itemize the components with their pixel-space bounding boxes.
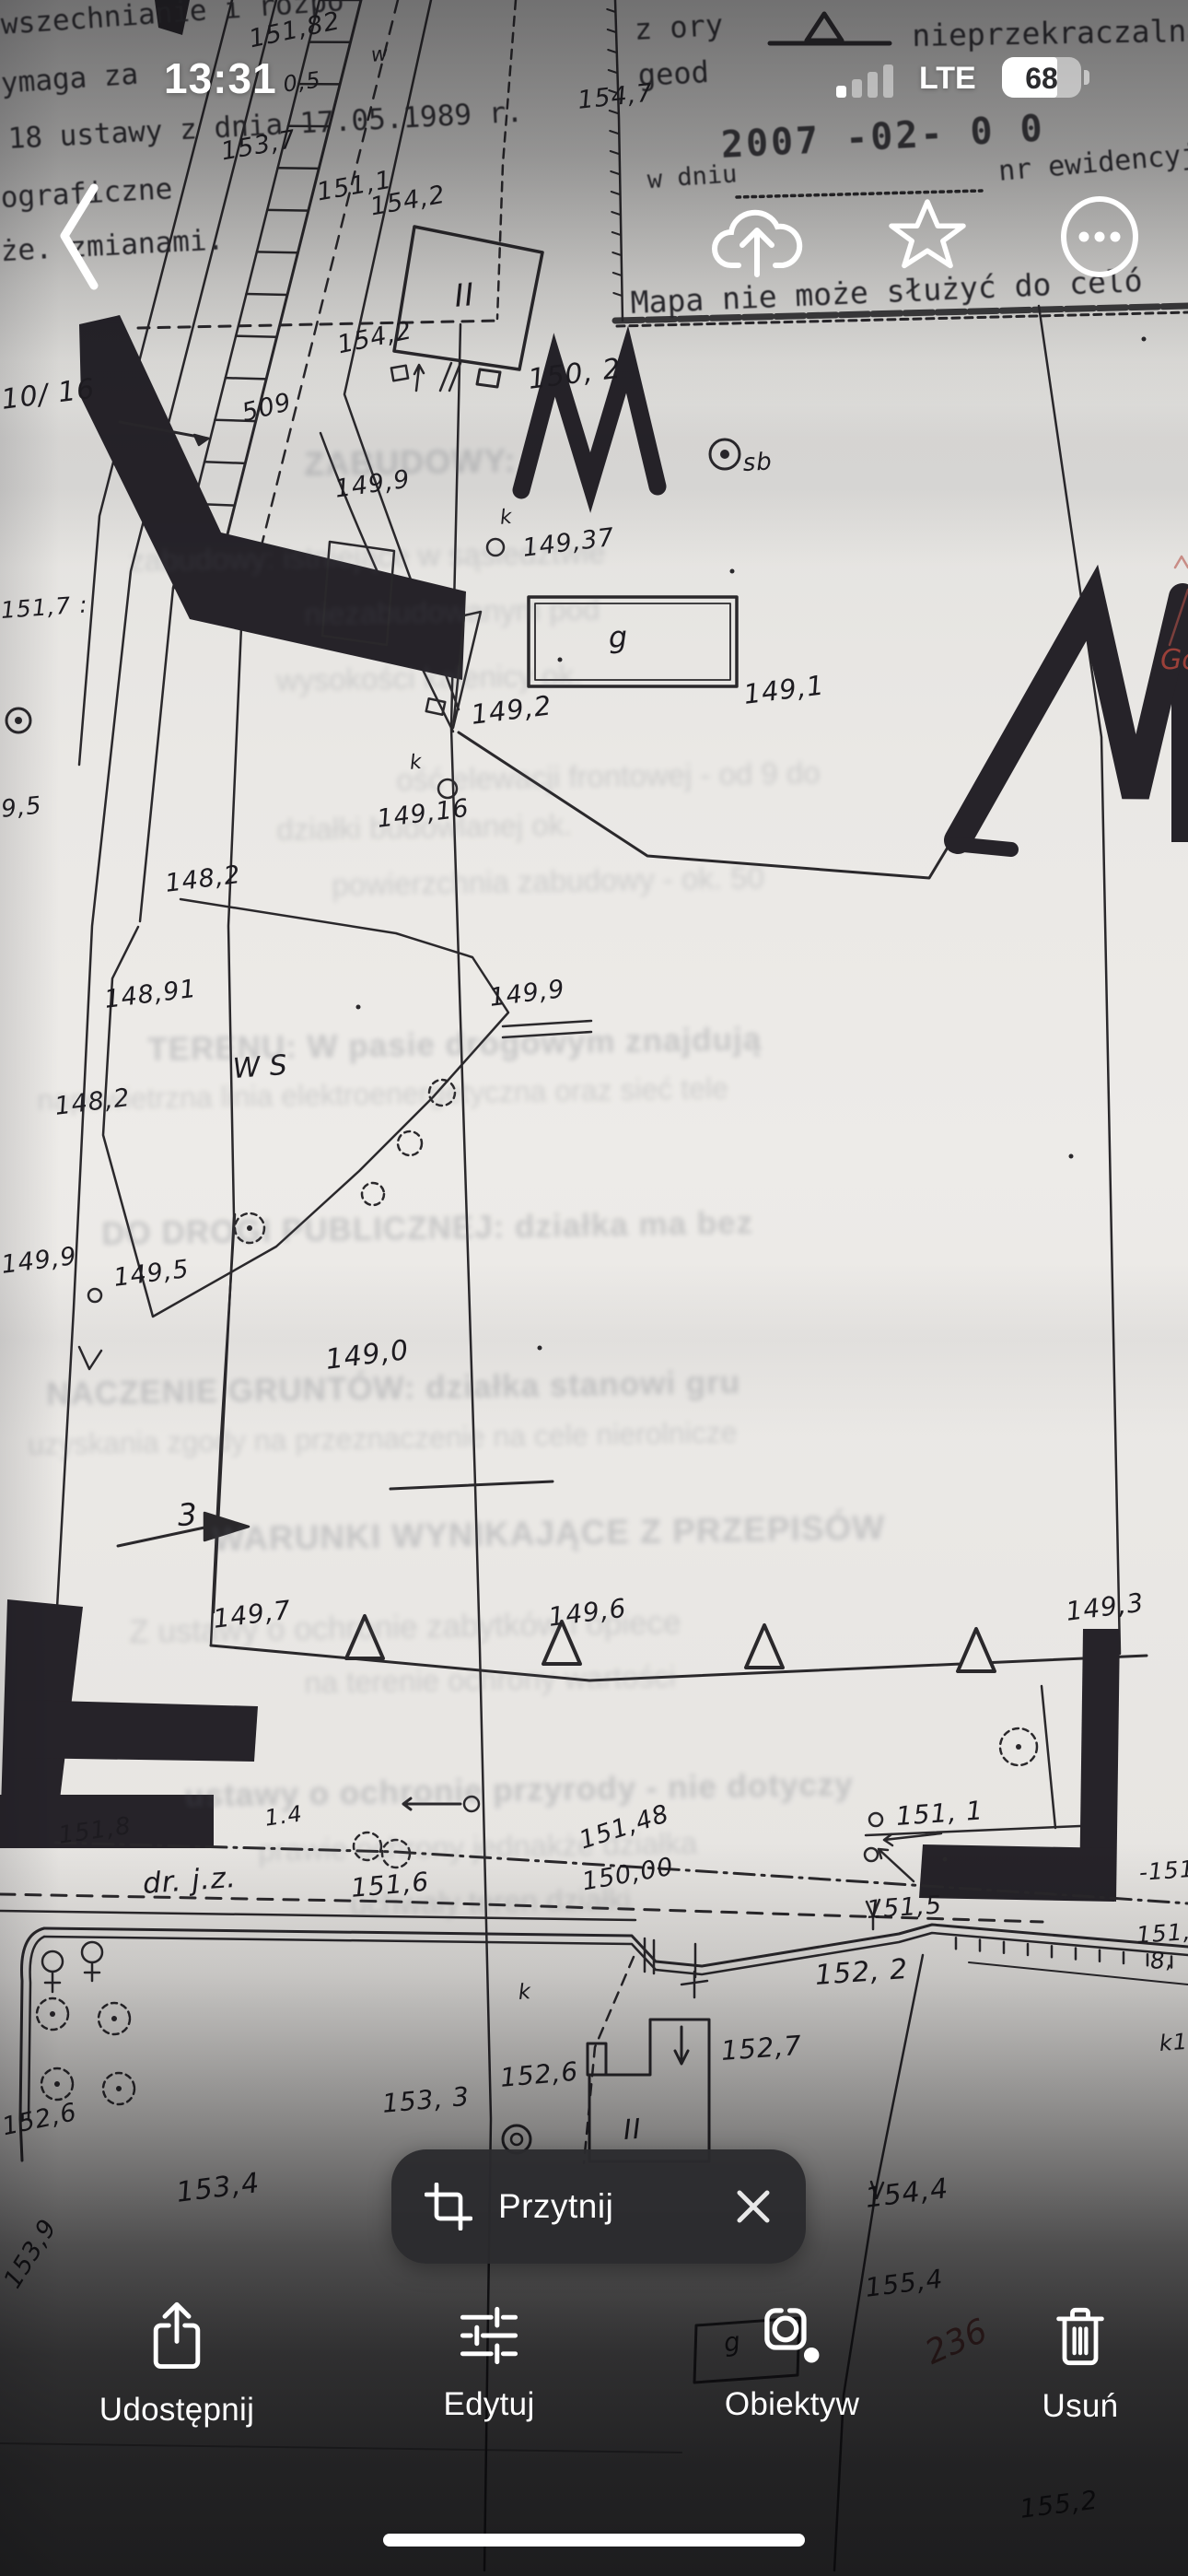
map-label: II [453,279,476,312]
map-label: 154,4 [864,2175,950,2213]
map-label: II [623,2116,643,2145]
map-label: 3 [177,1499,199,1530]
map-label: 154,2 [335,318,414,358]
bleed-through-text: DO DROGI PUBLICZNEJ: działka ma bez [101,1207,753,1250]
map-label: 153,4 [175,2170,262,2207]
lens-button[interactable]: Obiektyw [681,2305,903,2423]
delete-button[interactable]: Usuń [979,2305,1182,2425]
cloud-upload-icon[interactable] [711,193,803,282]
bleed-through-text: ość elewacji frontowej - od 9 do [396,757,821,795]
battery-percent: 68 [1002,62,1081,96]
share-icon [148,2301,205,2371]
map-label: 150, 2 [527,356,623,394]
bleed-through-text: powierzchnia zabudowy - ok. 50 [332,862,764,900]
map-label: 148,2 [164,862,242,896]
map-label: 153,9 [0,2215,62,2292]
map-label: w dniu [646,161,738,193]
map-label: 151,5 [866,1892,943,1923]
bleed-through-text: NACZENIE GRUNTÓW: działka stanowi gru [46,1366,740,1411]
status-bar: 13:31 LTE 68 [0,0,1188,120]
bleed-through-text: TERENU: W pasie drogowym znajdują [147,1023,762,1066]
map-label: k [499,508,514,529]
bleed-through-text: Z ustawy o ochronie zabytków i opiece [129,1607,681,1648]
map-label: dr. j.z. [142,1864,238,1899]
delete-label: Usuń [979,2388,1182,2425]
signal-strength-icon [836,59,901,100]
bleed-through-text: prawie ochrony jednakże działka [258,1828,697,1866]
favorite-star-button[interactable] [886,195,969,278]
share-button[interactable]: Udostępnij [66,2301,287,2429]
map-label: 149,2 [470,692,553,729]
edit-button[interactable]: Edytuj [379,2305,600,2423]
lens-label: Obiektyw [681,2386,903,2423]
photo-viewer-screen: wszechnianie i rozpoymaga za18 ustawy z … [0,0,1188,2576]
edit-label: Edytuj [379,2386,600,2423]
map-label: 152,6 [0,2100,79,2140]
bleed-through-text: napowietrzna linia elektroenergetyczna o… [37,1073,728,1115]
map-label: sb [742,450,773,475]
map-label: Gosp [1160,647,1188,674]
map-label: 152,6 [499,2059,579,2091]
bleed-through-text: niezabudowanym pod [304,593,600,629]
bleed-through-text: zabudowy: istniejące w sąsiedztwie [129,537,606,576]
bleed-through-text: na terenie ochrony wartości [304,1661,676,1698]
map-label: 153, 3 [381,2084,471,2117]
map-label: k1 [1159,2031,1188,2055]
map-label: g [608,622,629,652]
bleed-through-text: uchwały teren działki [350,1884,631,1919]
map-label: 152,7 [720,2032,803,2065]
lens-icon [762,2305,822,2366]
map-label: 9,5 [0,793,43,821]
edit-tune-icon [459,2305,519,2366]
map-label: 509 [239,390,294,426]
map-label: -151 [1138,1857,1188,1884]
network-type: LTE [919,61,976,97]
map-label: 149,5 [112,1257,191,1291]
status-time: 13:31 [164,53,277,103]
crop-chip-label: Przytnij [498,2187,613,2226]
close-icon[interactable] [732,2185,775,2228]
battery-icon: 68 [1002,57,1090,100]
crop-icon [425,2183,472,2231]
map-label: 155,4 [864,2266,945,2301]
bleed-through-text: działki budowlanej ok. [276,809,573,845]
map-label: 151, [1136,1920,1188,1947]
map-label: 151,7 : [0,592,88,622]
more-options-button[interactable] [1059,195,1140,278]
map-label: 151,8 [57,1814,133,1848]
bleed-through-text: ustawy o ochronie przyrody - nie dotyczy [184,1768,854,1812]
map-label: 148,91 [103,977,198,1013]
crop-suggestion-chip[interactable]: Przytnij [391,2149,806,2264]
share-label: Udostępnij [66,2392,287,2429]
trash-icon [1053,2305,1108,2368]
map-label: że. zmianami. [0,226,225,266]
bleed-through-text: uzyskania zgody na przeznaczenie na cele… [28,1418,738,1459]
map-label: 149,0 [324,1337,411,1375]
home-indicator[interactable] [383,2534,805,2547]
map-label: 8, [1149,1948,1175,1973]
map-label: 151, 1 [895,1797,984,1830]
map-label: 149,3 [1065,1590,1146,1625]
map-label: k [518,1982,532,2004]
bleed-through-text: ZABUDOWY: [304,444,517,481]
map-label: 149,1 [742,672,826,708]
map-label: 149,9 [0,1244,78,1278]
map-label: 10/ 16 [0,376,97,415]
map-label: 152, 2 [814,1956,909,1990]
bleed-through-text: wysokości kalenicy ok. [276,660,582,696]
back-button[interactable] [53,173,109,302]
map-label: 149,9 [488,977,566,1011]
map-label: 155,2 [1019,2488,1100,2523]
bleed-through-text: WARUNKI WYNIKAJĄCE Z PRZEPISÓW [212,1510,886,1556]
